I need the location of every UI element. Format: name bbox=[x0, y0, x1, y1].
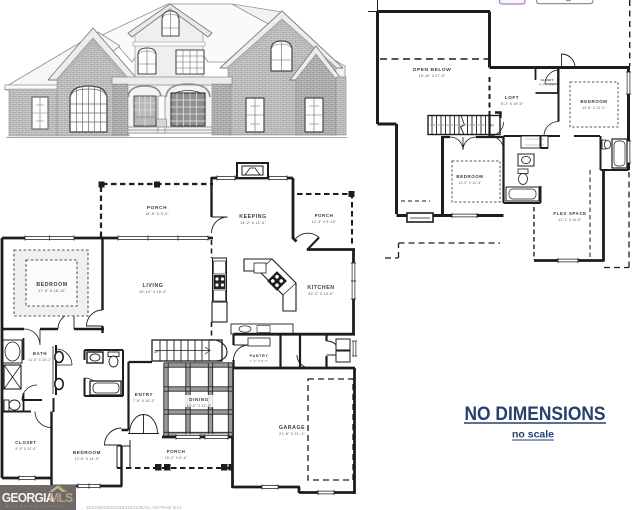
svg-text:8'-2" X 19'-6": 8'-2" X 19'-6" bbox=[501, 102, 524, 106]
svg-text:no scale: no scale bbox=[512, 429, 554, 441]
svg-text:KITCHEN: KITCHEN bbox=[307, 285, 334, 291]
svg-text:9'-9" X 11'-4": 9'-9" X 11'-4" bbox=[16, 447, 37, 451]
svg-text:20'-3" X 14'-0": 20'-3" X 14'-0" bbox=[308, 292, 334, 296]
svg-text:MLS: MLS bbox=[49, 491, 73, 506]
svg-text:BEDROOM: BEDROOM bbox=[580, 99, 607, 104]
svg-text:12'-6" X 12'-1": 12'-6" X 12'-1" bbox=[582, 106, 605, 110]
svg-text:19'-10" X 27'-6": 19'-10" X 27'-6" bbox=[419, 74, 446, 78]
svg-text:BATH: BATH bbox=[33, 351, 47, 356]
svg-text:PANTRY: PANTRY bbox=[250, 354, 269, 358]
svg-text:21'-8" X 21'-1": 21'-8" X 21'-1" bbox=[279, 432, 305, 436]
svg-text:LIVING: LIVING bbox=[143, 283, 164, 289]
svg-text:12'-4" X 9'-10": 12'-4" X 9'-10" bbox=[312, 220, 337, 224]
svg-text:UP: UP bbox=[154, 350, 159, 354]
svg-text:12'-6" X 14'-0": 12'-6" X 14'-0" bbox=[75, 457, 100, 461]
svg-text:CLOSET: CLOSET bbox=[541, 78, 554, 82]
svg-text:BEDROOM: BEDROOM bbox=[73, 450, 101, 455]
svg-text:BEDROOM: BEDROOM bbox=[36, 282, 67, 288]
svg-text:PORCH: PORCH bbox=[147, 205, 167, 211]
svg-text:ENTRY: ENTRY bbox=[135, 392, 153, 397]
svg-text:BEDROOM: BEDROOM bbox=[456, 174, 483, 179]
svg-text:11'-6" X 10'-1": 11'-6" X 10'-1" bbox=[29, 358, 52, 362]
svg-text:PORCH: PORCH bbox=[167, 449, 186, 454]
svg-text:19'-10" X 18'-4": 19'-10" X 18'-4" bbox=[139, 290, 167, 294]
svg-text:15'-6" X 9'-0": 15'-6" X 9'-0" bbox=[145, 212, 169, 216]
svg-text:12'-1" X 16'-8": 12'-1" X 16'-8" bbox=[558, 218, 581, 222]
svg-text:14'-2" X 12'-6": 14'-2" X 12'-6" bbox=[240, 221, 266, 225]
svg-text:17'-0" X 16'-11": 17'-0" X 16'-11" bbox=[38, 289, 66, 293]
svg-text:7'-9" X 16'-2": 7'-9" X 16'-2" bbox=[133, 399, 156, 403]
svg-text:KEEPING: KEEPING bbox=[239, 214, 267, 220]
svg-text:FLEX SPACE: FLEX SPACE bbox=[553, 211, 586, 216]
svg-text:4'-2" X 5'-9": 4'-2" X 5'-9" bbox=[539, 83, 555, 87]
svg-text:14'-0" X 13'-4": 14'-0" X 13'-4" bbox=[187, 404, 212, 408]
svg-text:NO DIMENSIONS: NO DIMENSIONS bbox=[465, 404, 606, 425]
svg-text:GEORGIA: GEORGIA bbox=[2, 491, 55, 506]
svg-text:GARAGE: GARAGE bbox=[279, 425, 305, 431]
svg-text:DINING: DINING bbox=[189, 397, 209, 402]
svg-text:7'-1" X 5'-7": 7'-1" X 5'-7" bbox=[250, 359, 268, 363]
svg-text:12'-0" X 11'-4": 12'-0" X 11'-4" bbox=[459, 181, 482, 185]
svg-text:2023394255323532531/BALLANTRAE: 2023394255323532531/BALLANTRAE B12 bbox=[86, 505, 182, 510]
svg-text:REAL ESTATE SERVICES: REAL ESTATE SERVICES bbox=[6, 505, 66, 509]
svg-text:15'-2" X 6'-4": 15'-2" X 6'-4" bbox=[165, 456, 188, 460]
svg-text:LOFT: LOFT bbox=[505, 95, 519, 100]
svg-text:OPEN BELOW: OPEN BELOW bbox=[413, 67, 452, 73]
svg-text:PORCH: PORCH bbox=[315, 213, 334, 218]
svg-text:CLOSET: CLOSET bbox=[15, 440, 36, 445]
